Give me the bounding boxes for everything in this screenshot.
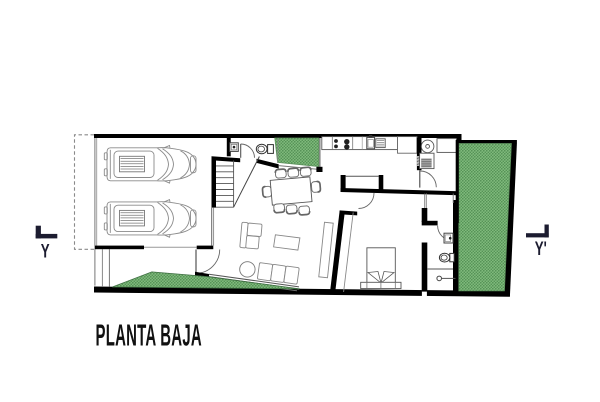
svg-text:Y': Y' (535, 239, 547, 260)
svg-text:Y: Y (41, 241, 50, 262)
svg-text:PLANTA BAJA: PLANTA BAJA (96, 319, 202, 353)
